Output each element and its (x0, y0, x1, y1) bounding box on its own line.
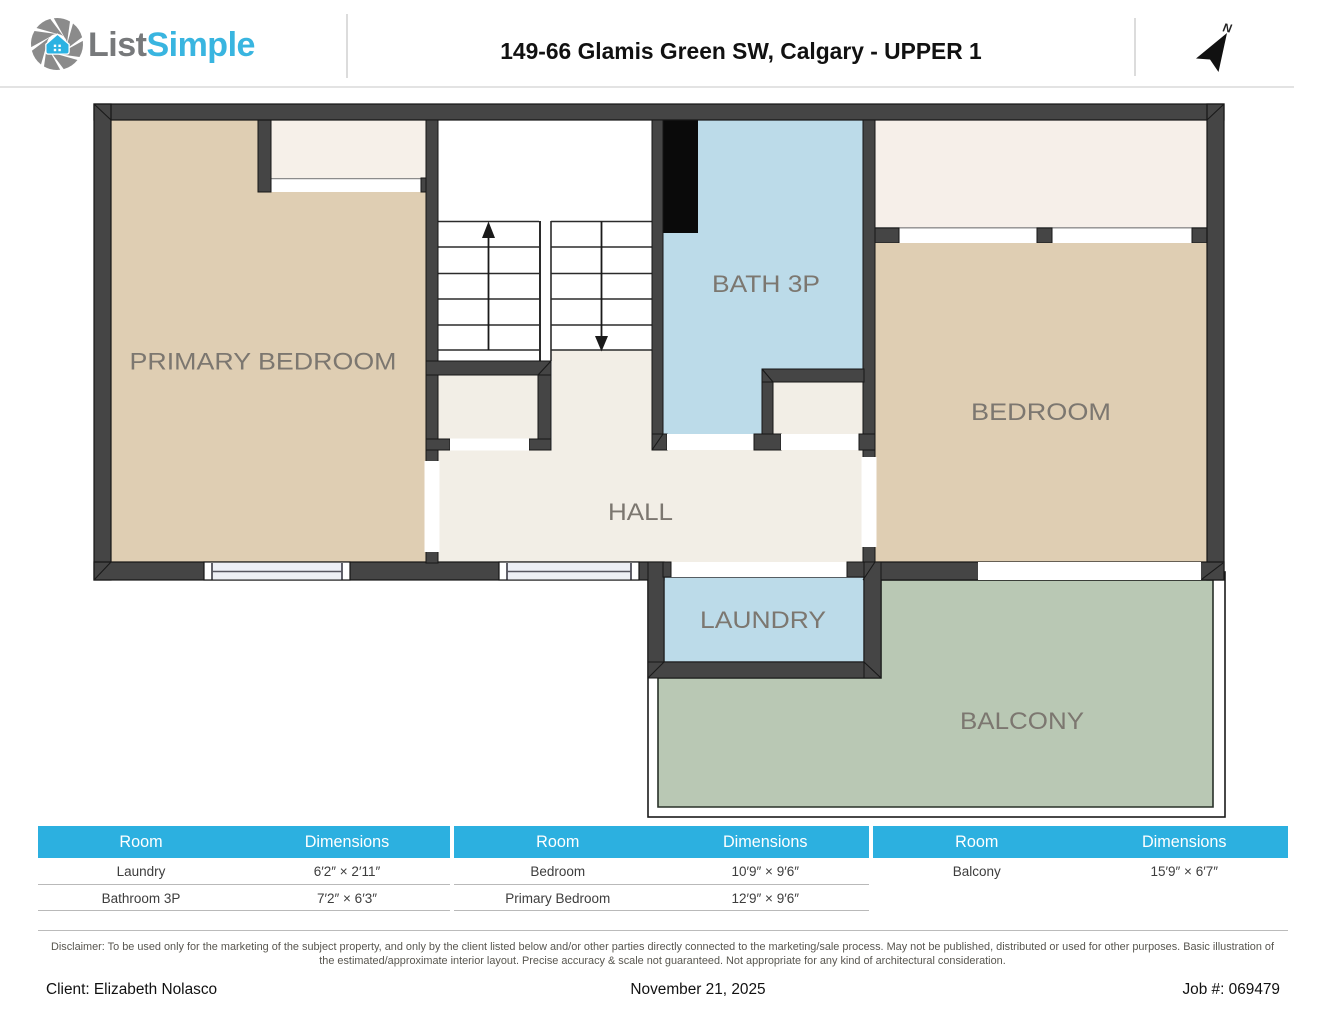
svg-text:BATH 3P: BATH 3P (712, 271, 820, 298)
svg-text:PRIMARY BEDROOM: PRIMARY BEDROOM (130, 349, 397, 376)
svg-text:BALCONY: BALCONY (960, 708, 1084, 735)
svg-text:BEDROOM: BEDROOM (971, 399, 1111, 426)
svg-text:HALL: HALL (608, 499, 673, 526)
svg-text:LAUNDRY: LAUNDRY (700, 607, 826, 634)
svg-text:N: N (1222, 20, 1233, 35)
